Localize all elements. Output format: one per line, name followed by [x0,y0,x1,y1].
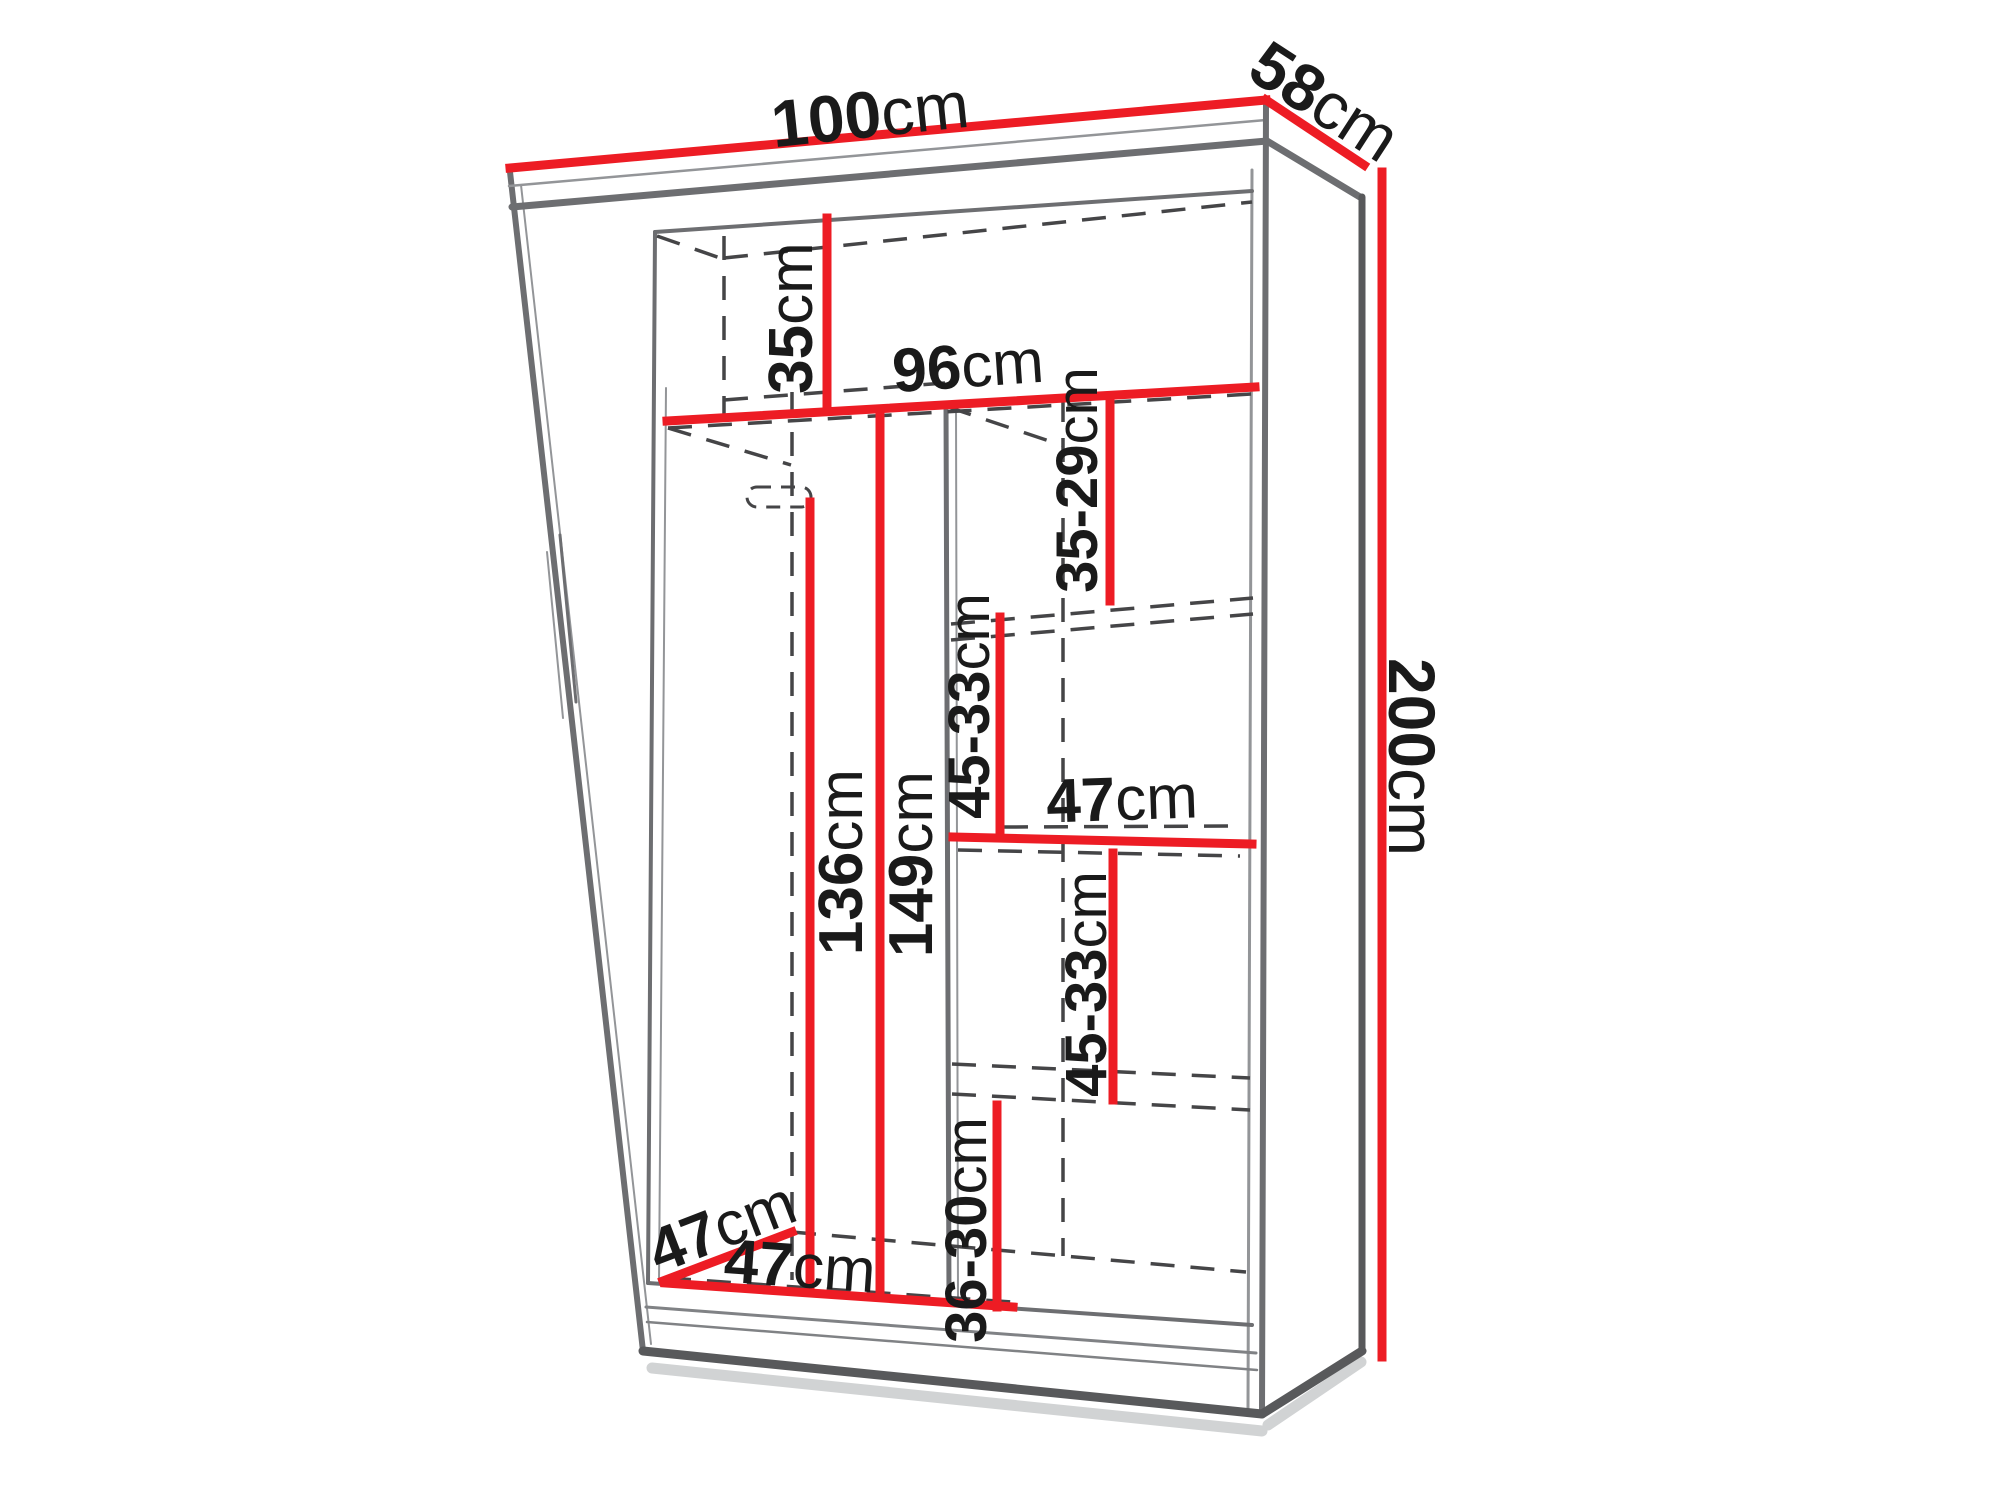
dimension-unit-shelf-width: cm [1114,762,1199,834]
dimension-value-hanging-height-1: 136 [807,852,876,955]
dimension-unit-hanging-height-2: cm [877,771,946,854]
dimension-value-shelf-gap-1: 35-29 [1045,444,1110,592]
dimension-label-shelf-gap-1: 35-29cm [1045,367,1110,593]
dimension-label-shelf-width: 47cm [1045,762,1199,836]
dimension-label-interior-width: 96cm [890,326,1046,405]
dimension-label-top-shelf-height: 35cm [757,242,826,394]
dimension-label-shelf-gap-2: 45-33cm [937,593,1002,819]
dimension-value-shelf-width: 47 [1045,765,1116,836]
dimension-value-shelf-gap-4: 36-30 [934,1194,999,1342]
diagram-canvas: 100cm58cm200cm35cm96cm35-29cm45-33cm47cm… [0,0,2000,1500]
dimension-unit-shelf-gap-3: cm [1054,871,1119,948]
dimension-unit-interior-width: cm [959,326,1046,401]
dimension-value-interior-width: 96 [890,332,964,406]
dimension-unit-height-right: cm [1375,768,1449,856]
dimension-unit-hanging-height-1: cm [807,769,876,852]
dimension-value-shelf-gap-3: 45-33 [1054,948,1119,1096]
dimension-label-bottom-width: 47cm [722,1226,878,1305]
dimension-label-height-right: 200cm [1375,658,1449,856]
dimension-unit-shelf-gap-4: cm [934,1117,999,1194]
dimension-label-shelf-gap-4: 36-30cm [934,1117,999,1343]
wardrobe-dimension-diagram: 100cm58cm200cm35cm96cm35-29cm45-33cm47cm… [0,0,2000,1500]
dimension-unit-shelf-gap-1: cm [1045,367,1110,444]
cabinet-edge-front-right-edge [1262,104,1266,1414]
dimension-value-bottom-width: 47 [722,1226,796,1300]
dimension-unit-bottom-width: cm [791,1231,878,1306]
dimension-value-height-right: 200 [1375,658,1449,768]
dimension-value-shelf-gap-2: 45-33 [937,670,1002,818]
dimension-unit-top-shelf-height: cm [757,242,826,325]
dimension-value-hanging-height-2: 149 [877,854,946,957]
dimension-unit-width-top: cm [877,67,972,150]
dimension-value-width-top: 100 [768,76,885,161]
dimension-unit-shelf-gap-2: cm [937,593,1002,670]
dimension-value-top-shelf-height: 35 [757,325,826,394]
dimension-label-hanging-height-2: 149cm [877,771,946,957]
dimension-label-shelf-gap-3: 45-33cm [1054,871,1119,1097]
dimension-label-hanging-height-1: 136cm [807,769,876,955]
